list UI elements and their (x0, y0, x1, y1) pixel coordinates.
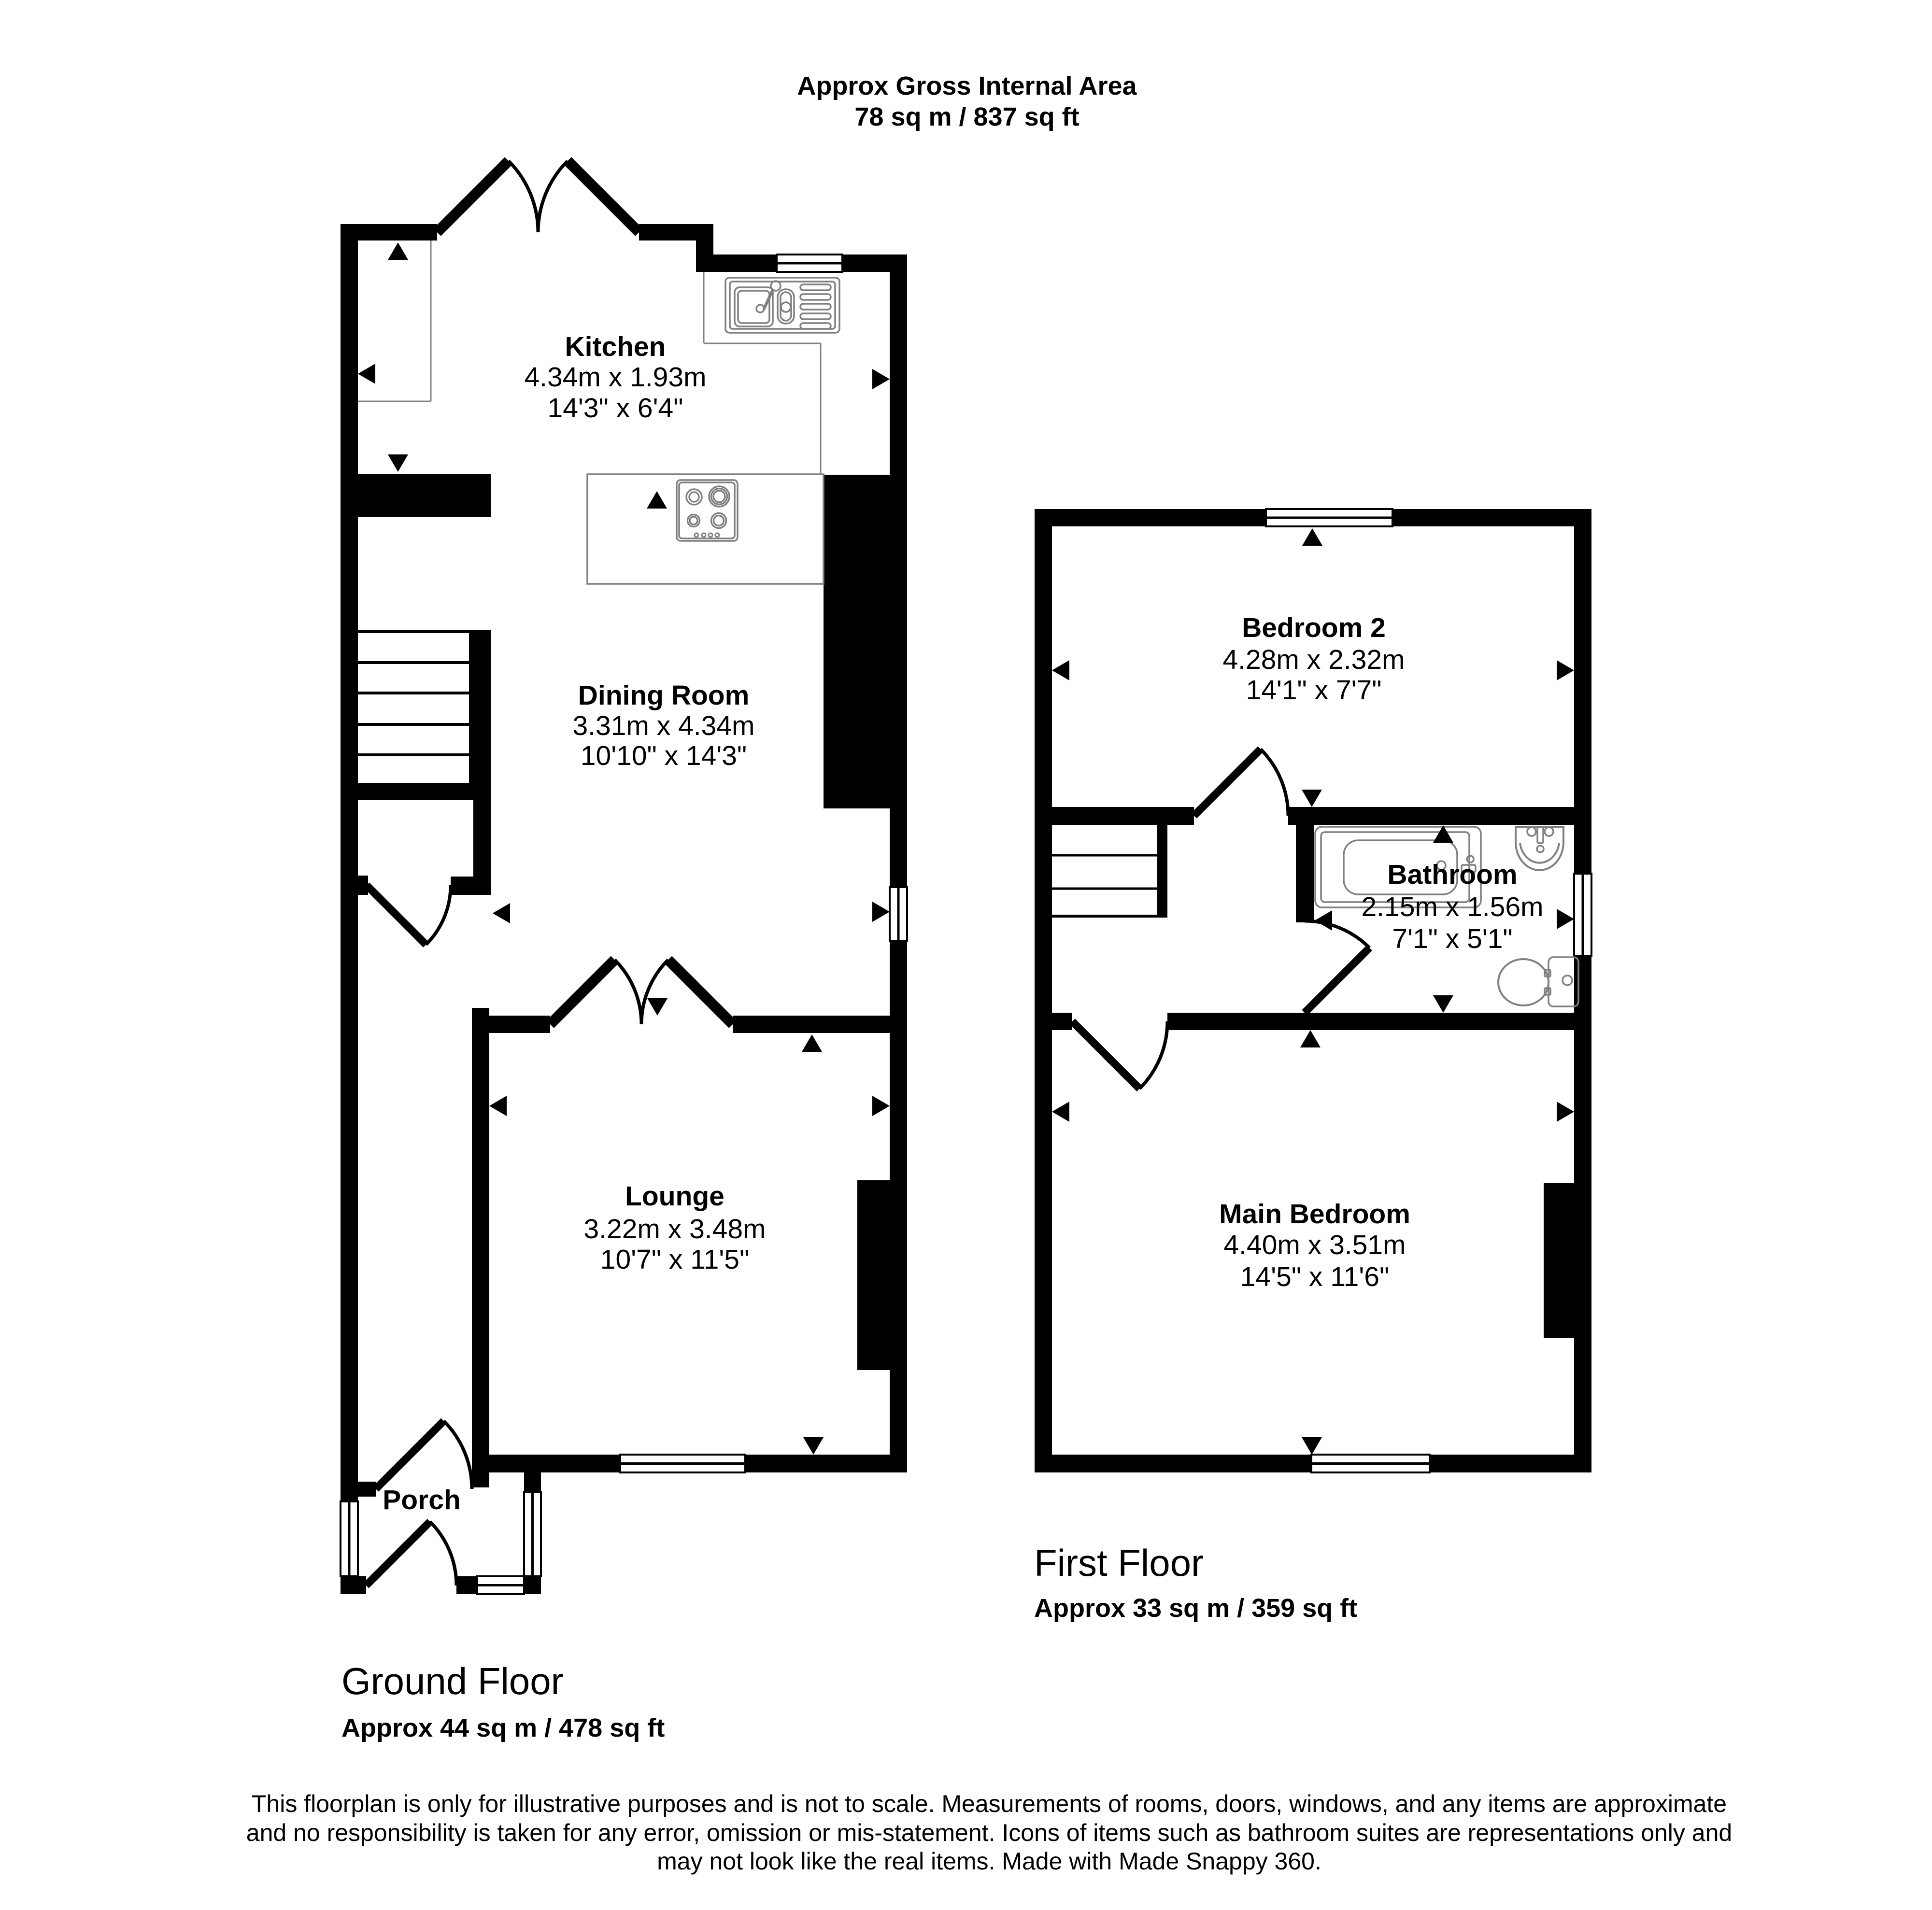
svg-text:4.40m x 3.51m: 4.40m x 3.51m (1223, 1230, 1406, 1260)
svg-text:Bathroom: Bathroom (1387, 859, 1517, 890)
svg-text:10'10" x 14'3": 10'10" x 14'3" (581, 740, 747, 771)
svg-text:Approx Gross Internal Area: Approx Gross Internal Area (797, 71, 1137, 100)
svg-text:14'1" x 7'7": 14'1" x 7'7" (1246, 675, 1382, 706)
svg-text:4.28m x 2.32m: 4.28m x 2.32m (1222, 644, 1405, 675)
svg-text:14'3" x 6'4": 14'3" x 6'4" (548, 393, 683, 424)
svg-text:Dining Room: Dining Room (578, 680, 750, 711)
svg-text:Porch: Porch (383, 1485, 461, 1515)
svg-text:7'1" x 5'1": 7'1" x 5'1" (1392, 923, 1512, 954)
svg-text:Approx 44 sq m / 478 sq ft: Approx 44 sq m / 478 sq ft (341, 1713, 665, 1742)
svg-text:Main Bedroom: Main Bedroom (1219, 1199, 1410, 1230)
svg-text:78 sq m / 837 sq ft: 78 sq m / 837 sq ft (854, 102, 1079, 131)
svg-text:Lounge: Lounge (625, 1181, 724, 1212)
svg-text:10'7" x 11'5": 10'7" x 11'5" (600, 1244, 749, 1275)
svg-text:3.22m x 3.48m: 3.22m x 3.48m (583, 1214, 766, 1245)
svg-text:Approx 33 sq m / 359 sq ft: Approx 33 sq m / 359 sq ft (1034, 1594, 1357, 1623)
svg-text:Bedroom 2: Bedroom 2 (1242, 612, 1386, 643)
svg-text:may not look like the real ite: may not look like the real items. Made w… (657, 1848, 1321, 1875)
svg-text:3.31m x 4.34m: 3.31m x 4.34m (572, 710, 754, 741)
svg-text:Ground Floor: Ground Floor (341, 1660, 564, 1702)
svg-text:and no responsibility is taken: and no responsibility is taken for any e… (246, 1819, 1732, 1846)
svg-text:First Floor: First Floor (1034, 1542, 1204, 1584)
svg-text:4.34m x 1.93m: 4.34m x 1.93m (524, 362, 706, 393)
svg-text:2.15m x 1.56m: 2.15m x 1.56m (1361, 891, 1543, 922)
svg-text:14'5" x 11'6": 14'5" x 11'6" (1240, 1261, 1389, 1292)
svg-text:This floorplan is only for ill: This floorplan is only for illustrative … (252, 1790, 1727, 1817)
svg-text:Kitchen: Kitchen (565, 331, 666, 362)
